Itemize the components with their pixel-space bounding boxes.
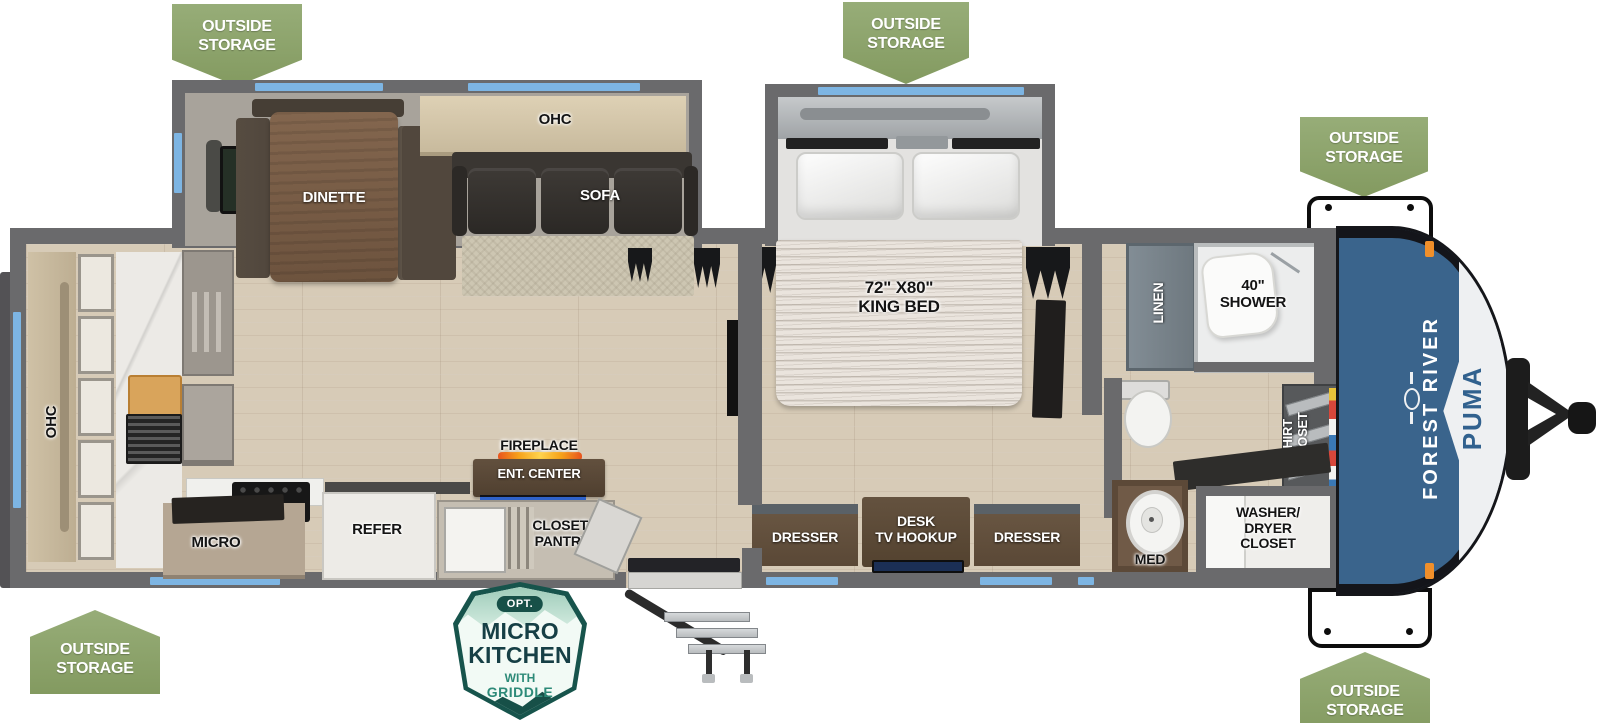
hitch-crossbar <box>1506 358 1530 480</box>
hitch-coupler <box>1568 402 1596 434</box>
banner-text: STORAGE <box>1326 702 1403 721</box>
bed-ohc-vent <box>786 138 888 149</box>
desk-label: DESK TV HOOKUP <box>864 514 968 545</box>
floorplan-canvas: OUTSIDE STORAGE OUTSIDE STORAGE OUTSIDE … <box>0 0 1600 723</box>
dresser-left-label: DRESSER <box>755 530 855 546</box>
bedroom-door-post <box>742 548 762 574</box>
bedroom-window-right <box>980 577 1052 585</box>
outside-storage-banner-front-bottom: OUTSIDE STORAGE <box>1300 652 1430 723</box>
bedroom-bath-wall-upper <box>1082 243 1102 415</box>
living-rug <box>462 236 694 296</box>
banner-text: OUTSIDE <box>1329 130 1399 149</box>
shower-name-line: SHOWER <box>1198 295 1308 312</box>
front-rack-frame-bottom <box>1308 588 1432 648</box>
sofa-armrest-right <box>684 166 698 236</box>
bath-window <box>1078 577 1094 585</box>
marker-light-top <box>1425 241 1434 257</box>
stove-knobs <box>238 486 304 494</box>
bedroom-slide-window <box>818 87 1024 95</box>
refrigerator-label: REFER <box>327 522 427 539</box>
badge-title-line2: KITCHEN <box>458 643 582 667</box>
bedroom-window-left <box>766 577 838 585</box>
shower-side-wall <box>1314 243 1338 389</box>
step-foot <box>702 674 715 683</box>
wd-line3: CLOSET <box>1218 536 1318 552</box>
outside-storage-banner-rear-bottom: OUTSIDE STORAGE <box>30 610 160 694</box>
wd-line1: WASHER/ <box>1218 505 1318 521</box>
step-tread <box>676 628 758 638</box>
rack-bolt <box>1325 204 1332 211</box>
griddle <box>126 414 182 464</box>
badge-title-line1: MICRO <box>458 619 582 643</box>
desk-line1: DESK <box>864 514 968 530</box>
step-leg <box>744 650 750 676</box>
wd-line2: DRYER <box>1218 521 1318 537</box>
linen-label: LINEN <box>1133 263 1183 343</box>
marker-light-bottom <box>1425 563 1434 579</box>
outside-storage-banner-top-left: OUTSIDE STORAGE <box>172 4 302 86</box>
king-bed-label: 72" X80" KING BED <box>804 278 994 316</box>
bed-ohc-bracket <box>896 136 948 149</box>
king-bed <box>776 240 1022 406</box>
sink-drain <box>1149 517 1154 522</box>
entry-platform <box>628 572 742 589</box>
entry-mat <box>628 558 740 572</box>
hall-tv-icon <box>727 320 738 416</box>
fr-emblem-icon <box>1404 388 1420 410</box>
hitch-a-frame-inner <box>1528 398 1556 430</box>
cabinet-door <box>78 378 114 436</box>
badge-opt-pill: OPT. <box>497 596 543 612</box>
banner-text: STORAGE <box>198 37 275 56</box>
bed-name-line: KING BED <box>804 297 994 316</box>
step-tread <box>664 612 750 622</box>
micro-kitchen-badge: OPT. MICRO KITCHEN WITH GRIDDLE <box>453 582 587 720</box>
sofa-ohc-label: OHC <box>500 112 610 129</box>
cabinet-door <box>78 440 114 498</box>
cabinet-door <box>78 254 114 312</box>
cabinet-door <box>78 502 114 560</box>
sofa-label: SOFA <box>545 188 655 205</box>
pillow <box>912 152 1020 220</box>
sofa-armrest-left <box>452 166 467 236</box>
bed-ohc-vent <box>952 138 1040 149</box>
rear-window <box>13 312 21 508</box>
curtain-icon <box>628 248 652 282</box>
cabinet-door <box>78 316 114 374</box>
banner-text: OUTSIDE <box>202 18 272 37</box>
living-slide-window-left <box>255 83 383 91</box>
kitchen-cabinet-doors <box>78 254 114 560</box>
rack-bolt <box>1324 628 1331 635</box>
rack-bolt <box>1407 204 1414 211</box>
cabinet-slat <box>204 292 209 352</box>
shower-label: 40" SHOWER <box>1198 278 1308 312</box>
kitchen-drawers <box>182 384 234 466</box>
living-slide-end-window <box>174 133 182 193</box>
step-tread <box>688 644 766 654</box>
banner-text: OUTSIDE <box>1330 683 1400 702</box>
pillow <box>796 152 904 220</box>
step-foot <box>740 674 753 683</box>
desk-tv-icon <box>872 560 964 573</box>
rack-bolt <box>1406 628 1413 635</box>
toilet <box>1124 390 1172 448</box>
badge-with-line: WITH <box>458 671 582 685</box>
washer-dryer-label: WASHER/ DRYER CLOSET <box>1218 505 1318 552</box>
logo-dash <box>1410 412 1413 424</box>
cabinet-slat <box>192 292 197 352</box>
med-cabinet-label: MED <box>1100 552 1200 568</box>
dresser-right-label: DRESSER <box>977 530 1077 546</box>
banner-text: OUTSIDE <box>60 641 130 660</box>
fireplace-label: FIREPLACE <box>474 438 604 454</box>
bath-sink <box>1126 490 1184 556</box>
curtain-icon <box>694 248 720 288</box>
banner-text: STORAGE <box>867 35 944 54</box>
living-bedroom-wall <box>738 243 762 505</box>
shower-front-wall <box>1194 362 1314 372</box>
sofa-cushion <box>468 168 536 234</box>
dinette-bench-left <box>236 118 270 278</box>
badge-inner: OPT. MICRO KITCHEN WITH GRIDDLE <box>458 587 582 715</box>
kitchen-tall-cabinet <box>182 250 234 376</box>
forest-river-logo: FOREST RIVER <box>1420 268 1444 548</box>
logo-dash <box>1410 372 1413 384</box>
bed-ohc-handle <box>800 108 990 120</box>
bed-size-line: 72" X80" <box>804 278 994 297</box>
microwave-label: MICRO <box>166 535 266 552</box>
rear-ohc-label: OHC <box>32 378 72 466</box>
dinette-label: DINETTE <box>278 190 390 207</box>
cabinet-slat <box>216 292 221 352</box>
bed-overhead-cabinet <box>778 97 1042 139</box>
banner-text: OUTSIDE <box>871 16 941 35</box>
banner-text: STORAGE <box>56 660 133 679</box>
curtain-icon <box>1026 247 1070 299</box>
outside-storage-banner-top-center: OUTSIDE STORAGE <box>843 2 969 84</box>
puma-logo: PUMA <box>1457 328 1487 488</box>
microwave <box>172 494 285 524</box>
ent-center-label: ENT. CENTER <box>476 467 602 482</box>
outside-storage-banner-front: OUTSIDE STORAGE <box>1300 117 1428 197</box>
desk-line2: TV HOOKUP <box>864 530 968 546</box>
living-slide-window-right <box>468 83 640 91</box>
closet-door <box>444 507 506 573</box>
badge-griddle-line: GRIDDLE <box>458 684 582 700</box>
shower-size-line: 40" <box>1198 278 1308 295</box>
step-leg <box>706 650 712 676</box>
cutting-board <box>128 375 182 419</box>
banner-text: STORAGE <box>1325 149 1402 168</box>
bedroom-tv-panel <box>1032 300 1066 419</box>
